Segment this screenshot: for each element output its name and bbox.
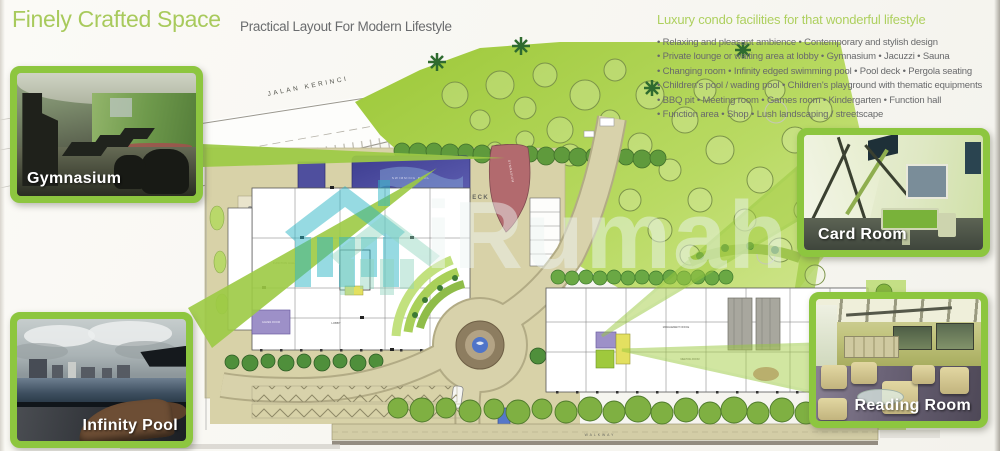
facility-line: • BBQ pit • Meeting room • Games room • … [657,94,1000,108]
inset-label-infinity-pool: Infinity Pool [83,417,178,435]
skyline-building [68,362,76,378]
card-room-tv [906,164,948,199]
inset-card-room: Card Room [797,128,990,257]
skyline-building [102,368,112,378]
armchair [821,365,847,389]
infinity-pool-photo: Infinity Pool [17,319,186,441]
page-subtitle: Practical Layout For Modern Lifestyle [240,19,452,34]
facility-line: • Private lounge or waiting area at lobb… [657,50,1000,64]
paper-edge-left [0,0,5,451]
inset-infinity-pool: Infinity Pool [10,312,193,448]
inset-gymnasium: Gymnasium [10,66,203,203]
skyline-building [29,359,48,377]
cloud [17,343,68,360]
reading-room-photo: Reading Room [816,299,981,421]
gymnasium-photo: Gymnasium [17,73,196,196]
skyline-building [117,365,131,377]
wall-artwork [936,323,974,349]
facility-line: • Children's pool / wading pool • Childr… [657,79,1000,93]
reading-room-window [816,305,837,368]
skyline-building [52,365,62,377]
watermark-text: iRumah [425,182,789,289]
skyline-building [81,367,95,378]
gym-spin-bike [141,149,189,193]
inset-label-card-room: Card Room [818,226,907,244]
facility-line: • Relaxing and pleasant ambience • Conte… [657,36,1000,50]
armchair [818,398,848,420]
armchair [851,362,877,384]
gym-distant-buildings [110,98,131,118]
management-office-label: MANAGEMENT OFFICE [663,326,690,329]
facility-line: • Function area • Shop • Lush landscapin… [657,108,1000,122]
inset-reading-room: Reading Room [809,292,988,428]
inset-label-gymnasium: Gymnasium [27,170,121,188]
wall-artwork [893,326,931,350]
bookshelf-cabinets [844,336,899,359]
page-title: Finely Crafted Space [12,6,221,33]
facilities-list: • Relaxing and pleasant ambience • Conte… [657,36,1000,122]
fountain [456,321,504,369]
games-room-label: GAMES ROOM [262,320,280,324]
walkway-label: WALKWAY [585,433,616,437]
lobby-label: LOBBY [331,321,340,325]
road-label: JALAN KERINCI [267,75,349,98]
inset-label-reading-room: Reading Room [855,397,972,415]
paper-edge-right [994,0,1000,451]
armchair [912,365,935,385]
card-room-photo: Card Room [804,135,983,250]
facility-line: • Changing room • Infinity edged swimmin… [657,65,1000,79]
card-room-window [965,142,981,174]
card-room-chair [938,213,956,237]
facilities-heading: Luxury condo facilities for that wonderf… [657,12,926,27]
brochure-page: JALAN KERINCI [0,0,1000,451]
armchair [940,367,970,394]
